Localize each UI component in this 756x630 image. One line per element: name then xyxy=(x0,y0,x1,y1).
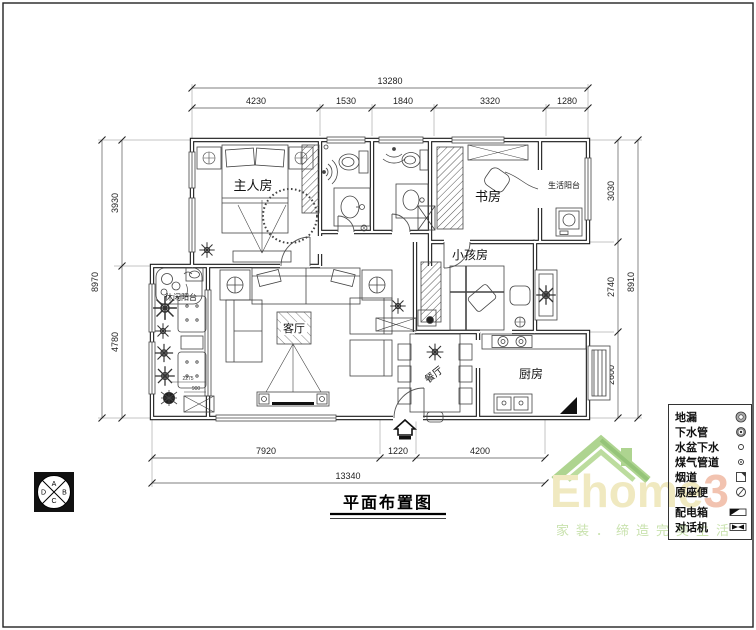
shower-icon xyxy=(326,160,337,184)
sink-icon xyxy=(403,190,419,210)
plant-icon xyxy=(427,344,444,361)
label-study: 书房 xyxy=(475,189,501,204)
legend-label: 配电箱 xyxy=(675,504,708,520)
dim-top-4: 3320 xyxy=(480,96,500,106)
legend-row: 配电箱 xyxy=(675,504,747,519)
plant-icon xyxy=(155,366,175,386)
label-balcony-dim2: 900 xyxy=(192,386,201,392)
floor-drain-icon xyxy=(729,411,747,423)
dim-right-overall: 8910 xyxy=(626,272,636,292)
elev-letter-d: D xyxy=(41,490,46,497)
entrance-door xyxy=(394,388,424,418)
legend-box: 地漏 下水管 水盆下水 煤气管道 xyxy=(668,404,752,540)
intercom-icon xyxy=(729,521,747,533)
legend-row: 水盆下水 xyxy=(675,439,747,454)
legend-row: 煤气管道 xyxy=(675,454,747,469)
original-toilet-icon xyxy=(729,486,747,498)
dim-bottom-3: 4200 xyxy=(470,446,490,456)
label-life-balcony: 生活阳台 xyxy=(548,180,580,190)
plant-icon xyxy=(155,323,170,338)
legend-row: 原座便 xyxy=(675,484,747,499)
dim-right-1: 3030 xyxy=(606,181,616,201)
elevation-marker: A B C D xyxy=(34,472,74,512)
plant-icon xyxy=(155,344,173,362)
bathroom2-fixtures xyxy=(383,148,428,219)
dim-left-overall: 8970 xyxy=(90,272,100,292)
elev-letter-a: A xyxy=(52,481,57,488)
legend-row: 烟道 xyxy=(675,469,747,484)
dim-left-2: 4780 xyxy=(110,332,120,352)
label-kids-room: 小孩房 xyxy=(452,247,488,262)
plant-icon xyxy=(390,298,405,313)
label-balcony-dim1: 2275 xyxy=(182,376,193,382)
master-bedroom-furniture xyxy=(197,145,319,262)
basin-drain-icon xyxy=(729,441,747,453)
side-table xyxy=(181,336,203,349)
legend-label: 烟道 xyxy=(675,469,697,485)
legend-label: 水盆下水 xyxy=(675,439,719,455)
label-dining-room: 餐厅 xyxy=(422,363,446,386)
elev-letter-b: B xyxy=(62,490,67,497)
gas-pipe-icon xyxy=(729,456,747,468)
legend-row: 地漏 xyxy=(675,409,747,424)
drawing-sheet: Ehome3 家装．缔造完美生活 xyxy=(0,0,756,630)
page-title: 平面布置图 xyxy=(343,493,433,512)
entrance-intercom-icon xyxy=(395,420,415,440)
life-balcony-furniture xyxy=(556,208,582,236)
shower-icon xyxy=(383,154,405,163)
legend-label: 煤气管道 xyxy=(675,454,719,470)
legend-label: 原座便 xyxy=(675,484,708,500)
armchair xyxy=(350,340,392,376)
flue-icon xyxy=(729,471,747,483)
label-master-bedroom: 主人房 xyxy=(233,178,272,193)
bookshelf xyxy=(437,147,463,229)
wardrobe xyxy=(421,262,441,322)
plant-icon xyxy=(536,285,556,305)
legend-label: 地漏 xyxy=(675,409,697,425)
plant-icon xyxy=(199,242,214,257)
sheet-border xyxy=(3,3,753,627)
dim-top-1: 4230 xyxy=(246,96,266,106)
wardrobe xyxy=(302,145,319,213)
elev-letter-c: C xyxy=(51,498,56,505)
tv xyxy=(272,402,314,405)
dim-top-5: 1280 xyxy=(557,96,577,106)
stool xyxy=(510,286,530,305)
dim-bottom-2: 1220 xyxy=(388,446,408,456)
floor-plan-drawing: 13280 4230 1530 1840 3320 1280 8970 3930… xyxy=(0,0,756,630)
legend-row: 对话机 xyxy=(675,519,747,534)
dim-top-3: 1840 xyxy=(393,96,413,106)
label-living-room: 客厅 xyxy=(283,321,305,335)
dim-top-2: 1530 xyxy=(336,96,356,106)
pillow xyxy=(467,283,497,312)
armchair xyxy=(350,298,392,334)
legend-label: 对话机 xyxy=(675,519,708,535)
dim-left-1: 3930 xyxy=(110,193,120,213)
drain-pipe-icon xyxy=(729,426,747,438)
title-block: 平面布置图 xyxy=(330,493,446,519)
legend-label: 下水管 xyxy=(675,424,708,440)
study-furniture xyxy=(437,145,538,229)
kitchen-bay-window xyxy=(588,346,610,400)
dim-bottom-1: 7920 xyxy=(256,446,276,456)
lounge-chair xyxy=(178,352,206,388)
living-room-furniture xyxy=(220,268,416,406)
corner-fan xyxy=(560,397,577,414)
dim-right-2: 2740 xyxy=(606,277,616,297)
dim-bottom-overall: 13340 xyxy=(335,471,360,481)
legend-row: 下水管 xyxy=(675,424,747,439)
dim-top-overall: 13280 xyxy=(377,76,402,86)
bath1-door xyxy=(338,216,354,232)
label-leisure-balcony: 休闲阳台 xyxy=(165,292,197,302)
bath2-door xyxy=(392,214,410,232)
distribution-box-icon xyxy=(729,506,747,518)
plant-dark-icon xyxy=(161,390,177,406)
label-kitchen: 厨房 xyxy=(519,366,543,381)
